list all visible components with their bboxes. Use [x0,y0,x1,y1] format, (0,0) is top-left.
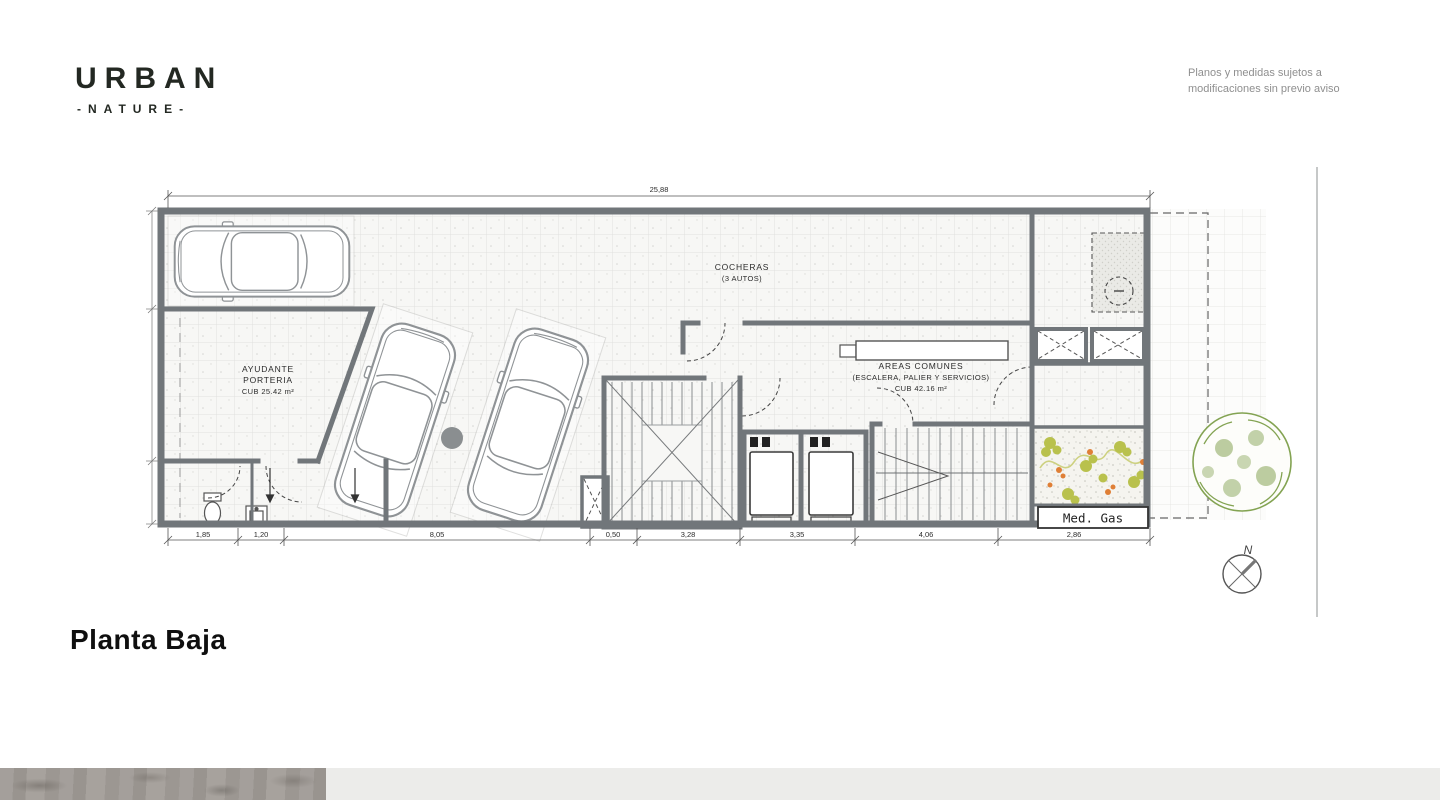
dim-segment: 8,05 [430,530,445,539]
lobby-bench [840,341,1008,360]
toilet-icon [204,493,221,524]
cocheras-sublabel: (3 AUTOS) [722,274,762,283]
disclaimer-text: Planos y medidas sujetos a modificacione… [1188,66,1408,98]
garden-planter [1034,428,1147,505]
dimension-top: 25,88 [164,185,1154,208]
ayudante-area: CUB 25.42 m² [242,387,294,396]
areas-comunes-area: CUB 42.16 m² [895,384,947,393]
dim-segment: 3,35 [790,530,805,539]
brand-name: URBAN [75,64,223,94]
cocheras-label: COCHERAS [715,262,770,272]
dim-segment: 0,50 [606,530,621,539]
tree-icon [1193,413,1291,511]
concrete-texture-strip [0,768,326,800]
dim-segment: 1,20 [254,530,269,539]
areas-comunes-label-1: AREAS COMUNES [878,361,963,371]
parking-bay-1 [168,216,354,306]
brand-logo: URBAN -NATURE- [75,64,223,116]
disclaimer-line-2: modificaciones sin previo aviso [1188,82,1408,98]
shaft-x-box [1036,329,1086,361]
compass-north-label: N [1244,543,1253,557]
dim-segment: 3,28 [681,530,696,539]
med-gas-label: Med. Gas [1063,511,1123,526]
dim-segment: 4,06 [919,530,934,539]
ayudante-label-2: PORTERIA [243,375,293,385]
exterior-area [1150,209,1291,520]
dim-segment: 2,86 [1067,530,1082,539]
dim-segment: 1,85 [196,530,211,539]
floor-plan: Med. Gas COCHERAS (3 AUTOS) AYUDANTE POR… [140,150,1340,650]
car-icon [175,222,350,301]
compass-icon: N [1223,543,1261,593]
med-gas-box: Med. Gas [1038,507,1148,528]
planter-square [1092,233,1146,312]
brand-tagline: -NATURE- [77,102,223,116]
dimension-bottom: 1,85 1,20 8,05 0,50 3,28 3,35 4,06 2,86 [164,528,1154,546]
structural-column [441,427,463,449]
areas-comunes-label-2: (ESCALERA, PALIER Y SERVICIOS) [853,373,990,382]
shaft-x-box [1092,329,1144,361]
disclaimer-line-1: Planos y medidas sujetos a [1188,66,1408,82]
dim-total-width: 25,88 [650,185,669,194]
page: { "brand": { "name": "URBAN", "tagline":… [0,0,1440,800]
ayudante-label-1: AYUDANTE [242,364,294,374]
plan-title: Planta Baja [70,624,226,656]
